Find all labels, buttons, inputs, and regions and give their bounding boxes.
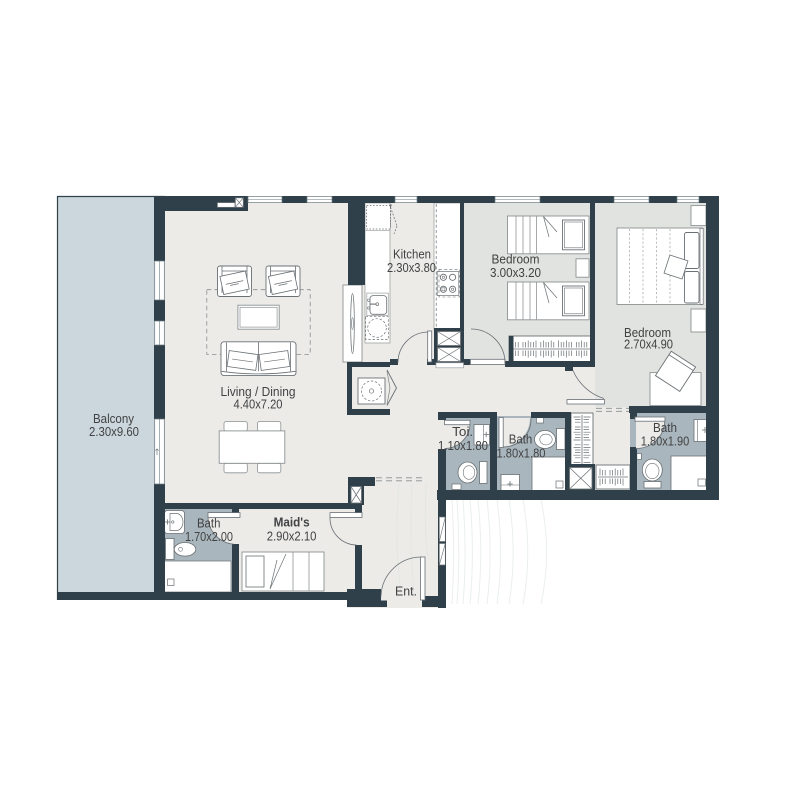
svg-text:2.30x3.80: 2.30x3.80 xyxy=(387,261,436,275)
svg-text:2.70x4.90: 2.70x4.90 xyxy=(624,338,673,352)
svg-text:4.40x7.20: 4.40x7.20 xyxy=(234,398,283,412)
svg-text:Kitchen: Kitchen xyxy=(393,248,431,262)
svg-text:Bath: Bath xyxy=(653,421,677,435)
svg-text:1.80x1.90: 1.80x1.90 xyxy=(641,435,690,449)
svg-text:1.70x2.00: 1.70x2.00 xyxy=(185,530,233,544)
svg-text:1.80x1.80: 1.80x1.80 xyxy=(497,447,546,461)
svg-text:Maid's: Maid's xyxy=(274,516,310,530)
svg-text:Bath: Bath xyxy=(509,433,533,447)
svg-text:1.10x1.80: 1.10x1.80 xyxy=(438,439,488,453)
svg-text:Bath: Bath xyxy=(197,517,221,531)
svg-text:Toi.: Toi. xyxy=(452,425,473,439)
svg-text:2.30x9.60: 2.30x9.60 xyxy=(89,425,139,439)
svg-text:Bedroom: Bedroom xyxy=(492,253,540,267)
svg-text:2.90x2.10: 2.90x2.10 xyxy=(267,530,317,544)
svg-text:3.00x3.20: 3.00x3.20 xyxy=(490,266,541,280)
svg-text:Balcony: Balcony xyxy=(93,412,135,426)
svg-text:Ent.: Ent. xyxy=(395,585,417,599)
